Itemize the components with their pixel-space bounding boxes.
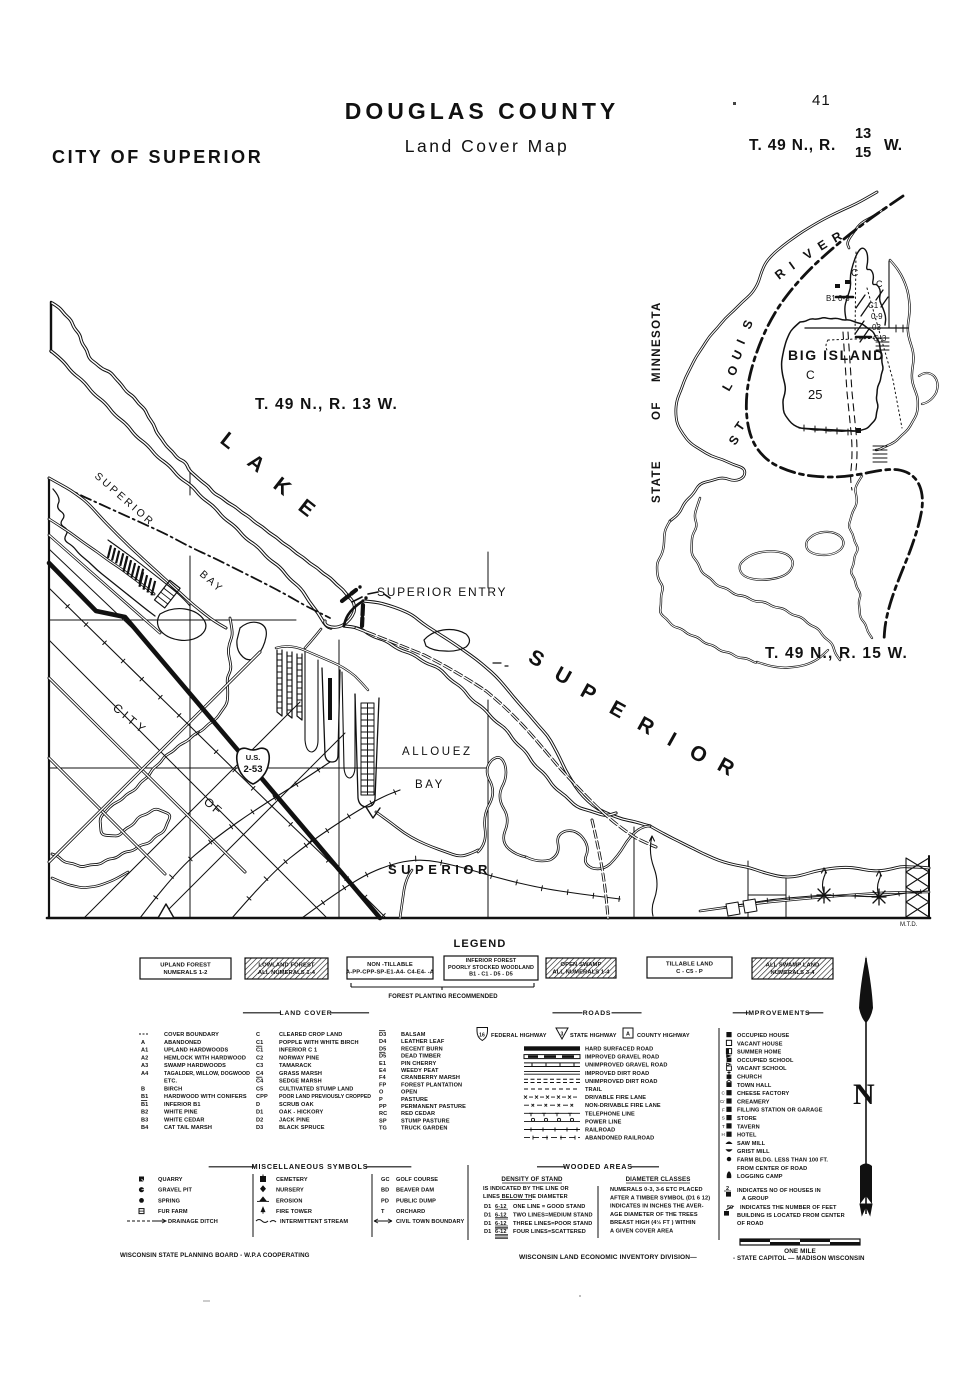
svg-text:TRAIL: TRAIL (585, 1087, 602, 1093)
svg-text:P: P (379, 1097, 383, 1103)
svg-text:C1: C1 (868, 301, 879, 310)
svg-text:GOLF COURSE: GOLF COURSE (396, 1177, 438, 1183)
svg-text:TWO LINES=MEDIUM STAND: TWO LINES=MEDIUM STAND (513, 1212, 593, 1218)
svg-text:PUBLIC DUMP: PUBLIC DUMP (396, 1198, 436, 1204)
svg-text:THREE LINES=POOR STAND: THREE LINES=POOR STAND (513, 1221, 592, 1227)
svg-text:C - C5 - P: C - C5 - P (676, 969, 703, 975)
svg-text:RAILROAD: RAILROAD (585, 1128, 615, 1134)
svg-text:JACK PINE: JACK PINE (279, 1117, 310, 1123)
svg-text:E1: E1 (379, 1061, 386, 1067)
svg-text:ALLOUEZ: ALLOUEZ (402, 746, 473, 758)
svg-text:WOODED AREAS: WOODED AREAS (563, 1162, 633, 1171)
svg-text:A1: A1 (141, 1048, 148, 1054)
svg-text:NORWAY PINE: NORWAY PINE (279, 1055, 319, 1061)
svg-text:NON -TILLABLE: NON -TILLABLE (367, 962, 413, 968)
svg-text:B1 0-3: B1 0-3 (826, 294, 850, 303)
svg-text:Land Cover Map: Land Cover Map (405, 136, 569, 156)
svg-text:BD: BD (381, 1188, 389, 1194)
svg-text:BAY: BAY (415, 779, 445, 791)
svg-text:BEAVER DAM: BEAVER DAM (396, 1188, 434, 1194)
svg-text:SPRING: SPRING (158, 1198, 180, 1204)
svg-text:RECENT BURN: RECENT BURN (401, 1046, 443, 1052)
svg-text:0-9: 0-9 (871, 312, 883, 321)
svg-text:SP: SP (379, 1118, 387, 1124)
svg-text:POPPLE WITH WHITE BIRCH: POPPLE WITH WHITE BIRCH (279, 1040, 359, 1046)
svg-text:BIG ISLAND: BIG ISLAND (788, 347, 885, 363)
svg-text:CREAMERY: CREAMERY (737, 1099, 770, 1105)
svg-text:PIN CHERRY: PIN CHERRY (401, 1061, 436, 1067)
svg-text:OF ROAD: OF ROAD (737, 1221, 764, 1227)
svg-text:D: D (256, 1102, 260, 1108)
svg-text:NUMERALS 3-4: NUMERALS 3-4 (770, 970, 815, 976)
svg-text:S: S (722, 1116, 725, 1121)
svg-text:TAVERN: TAVERN (737, 1124, 760, 1130)
svg-text:CHURCH: CHURCH (737, 1075, 762, 1081)
svg-text:OF: OF (651, 401, 663, 420)
svg-text:C: C (876, 279, 883, 289)
svg-text:MINNESOTA: MINNESOTA (651, 301, 663, 382)
svg-text:UPLAND FOREST: UPLAND FOREST (160, 962, 211, 968)
svg-text:LAND COVER: LAND COVER (280, 1010, 333, 1017)
svg-text:C1: C1 (256, 1048, 263, 1054)
svg-text:WISCONSIN STATE PLANNING B: WISCONSIN STATE PLANNING BOARD - W.P.A C… (120, 1252, 310, 1259)
svg-text:AFTER A TIMBER SYMBOL (D1 6 12: AFTER A TIMBER SYMBOL (D1 6 12) (610, 1195, 710, 1201)
svg-text:O: O (379, 1090, 384, 1096)
svg-text:WHITE CEDAR: WHITE CEDAR (164, 1117, 205, 1123)
svg-text:OCCUPIED SCHOOL: OCCUPIED SCHOOL (737, 1058, 794, 1064)
svg-text:D1: D1 (256, 1110, 263, 1116)
svg-text:3: 3 (561, 1032, 564, 1038)
svg-text:LOWLAND FOREST: LOWLAND FOREST (258, 962, 315, 968)
svg-text:UNIMPROVED GRAVEL ROAD: UNIMPROVED GRAVEL ROAD (585, 1063, 668, 1069)
svg-text:2-53: 2-53 (243, 764, 262, 775)
svg-text:ETC.: ETC. (164, 1079, 177, 1085)
svg-text:SUPERIOR ENTRY: SUPERIOR ENTRY (377, 585, 507, 599)
svg-text:MISCELLANEOUS SYMBOLS: MISCELLANEOUS SYMBOLS (252, 1162, 369, 1171)
svg-text:SEDGE MARSH: SEDGE MARSH (279, 1079, 322, 1085)
svg-text:INFERIOR B1: INFERIOR B1 (164, 1102, 201, 1108)
svg-text:TOWN HALL: TOWN HALL (737, 1083, 772, 1089)
svg-text:D3: D3 (256, 1125, 263, 1131)
svg-text:M.T.D.: M.T.D. (900, 922, 918, 928)
svg-text:OPEN SWAMP: OPEN SWAMP (561, 962, 602, 968)
svg-text:CAT TAIL MARSH: CAT TAIL MARSH (164, 1125, 212, 1131)
svg-text:A3: A3 (141, 1063, 148, 1069)
svg-text:HARDWOOD WITH CONIFERS: HARDWOOD WITH CONIFERS (164, 1094, 247, 1100)
svg-text:T: T (722, 1124, 725, 1129)
svg-text:DEAD TIMBER: DEAD TIMBER (401, 1054, 441, 1060)
svg-text:SAW MILL: SAW MILL (737, 1141, 766, 1147)
svg-text:RED CEDAR: RED CEDAR (401, 1111, 435, 1117)
svg-text:GRAVEL PIT: GRAVEL PIT (158, 1188, 193, 1194)
svg-text:VACANT HOUSE: VACANT HOUSE (737, 1041, 783, 1047)
svg-text:ORCHARD: ORCHARD (396, 1209, 425, 1215)
svg-text:TAGALDER, WILLOW, DOGWOOD: TAGALDER, WILLOW, DOGWOOD (164, 1071, 250, 1077)
svg-text:NUMERALS 0-3, 3-6 ETC PLACED: NUMERALS 0-3, 3-6 ETC PLACED (610, 1187, 703, 1193)
svg-text:PD: PD (381, 1198, 389, 1204)
svg-text:BIRCH: BIRCH (164, 1086, 182, 1092)
svg-text:TAMARACK: TAMARACK (279, 1063, 312, 1069)
svg-text:INDICATES NO OF HOUSES IN: INDICATES NO OF HOUSES IN (737, 1188, 821, 1194)
svg-text:F: F (722, 1107, 725, 1112)
svg-text:SUPERIOR: SUPERIOR (388, 862, 492, 877)
svg-text:CEMETERY: CEMETERY (276, 1177, 308, 1183)
svg-text:INDICATES THE NUMBER OF FE: INDICATES THE NUMBER OF FEET (740, 1205, 837, 1211)
svg-text:CITY OF SUPERIOR: CITY OF SUPERIOR (52, 147, 263, 167)
svg-text:HEMLOCK WITH HARDWOOD: HEMLOCK WITH HARDWOOD (164, 1055, 246, 1061)
svg-text:B1: B1 (141, 1102, 148, 1108)
svg-text:T. 49 N., R. 15 W.: T. 49 N., R. 15 W. (765, 645, 908, 662)
svg-text:INTERMITTENT STREAM: INTERMITTENT STREAM (280, 1219, 348, 1225)
svg-text:DENSITY OF STAND: DENSITY OF STAND (501, 1176, 563, 1183)
svg-text:N: N (853, 1078, 875, 1111)
svg-text:LEGEND: LEGEND (453, 938, 506, 950)
svg-text:IMPROVEMENTS: IMPROVEMENTS (746, 1010, 811, 1017)
svg-text:OPEN: OPEN (401, 1090, 417, 1096)
svg-text:STATE: STATE (651, 460, 663, 503)
svg-text:STATE HIGHWAY: STATE HIGHWAY (570, 1033, 617, 1039)
svg-text:RC: RC (379, 1111, 387, 1117)
svg-text:TELEPHONE LINE: TELEPHONE LINE (585, 1111, 635, 1117)
svg-text:STUMP PASTURE: STUMP PASTURE (401, 1118, 450, 1124)
svg-text:FROM CENTER OF ROAD: FROM CENTER OF ROAD (737, 1166, 807, 1172)
svg-text:A GIVEN COVER AREA: A GIVEN COVER AREA (610, 1229, 673, 1235)
svg-text:BLACK SPRUCE: BLACK SPRUCE (279, 1125, 325, 1131)
svg-text:DIAMETER CLASSES: DIAMETER CLASSES (626, 1176, 691, 1183)
svg-text:NURSERY: NURSERY (276, 1188, 304, 1194)
svg-text:INFERIOR FOREST: INFERIOR FOREST (466, 958, 517, 964)
svg-text:BALSAM: BALSAM (401, 1032, 426, 1038)
svg-text:GRIST MILL: GRIST MILL (737, 1149, 770, 1155)
svg-text:NON-DRIVABLE FIRE LANE: NON-DRIVABLE FIRE LANE (585, 1103, 661, 1109)
svg-text:GC: GC (381, 1177, 390, 1183)
svg-text:LEATHER LEAF: LEATHER LEAF (401, 1039, 445, 1045)
svg-text:C5: C5 (256, 1086, 263, 1092)
svg-text:TILLABLE LAND: TILLABLE LAND (666, 961, 713, 967)
svg-text:D5: D5 (379, 1054, 386, 1060)
svg-text:PERMANENT PASTURE: PERMANENT PASTURE (401, 1104, 466, 1110)
svg-text:EROSION: EROSION (276, 1198, 303, 1204)
svg-text:FARM BLDG. LESS THAN 100 FT.: FARM BLDG. LESS THAN 100 FT. (737, 1158, 828, 1164)
svg-text:C3: C3 (256, 1063, 263, 1069)
svg-text:FOUR LINES=SCATTERED: FOUR LINES=SCATTERED (513, 1229, 586, 1235)
svg-text:COVER BOUNDARY: COVER BOUNDARY (164, 1032, 219, 1038)
svg-text:B2: B2 (141, 1110, 148, 1116)
svg-text:Cr: Cr (720, 1099, 725, 1104)
svg-text:C: C (851, 268, 858, 279)
svg-text:FILLING STATION OR GARAGE: FILLING STATION OR GARAGE (737, 1108, 823, 1114)
svg-text:DRIVABLE FIRE LANE: DRIVABLE FIRE LANE (585, 1095, 646, 1101)
svg-text:ALL NUMERALS 1-4: ALL NUMERALS 1-4 (258, 970, 316, 976)
svg-text:D1: D1 (484, 1212, 491, 1218)
svg-text:25: 25 (808, 387, 822, 402)
svg-text:ROADS: ROADS (583, 1010, 612, 1017)
svg-text:T. 49 N., R.: T. 49 N., R. (749, 137, 836, 154)
svg-text:A4: A4 (141, 1071, 149, 1077)
svg-text:VACANT SCHOOL: VACANT SCHOOL (737, 1066, 787, 1072)
svg-text:ABANDONED: ABANDONED (164, 1040, 201, 1046)
svg-text:TG: TG (379, 1126, 387, 1132)
svg-text:A2: A2 (141, 1055, 148, 1061)
svg-text:B1: B1 (141, 1094, 148, 1100)
svg-text:NUMERALS 1-2: NUMERALS 1-2 (163, 970, 207, 976)
svg-text:D4: D4 (379, 1039, 387, 1045)
svg-text:INFERIOR C 1: INFERIOR C 1 (279, 1048, 317, 1054)
svg-text:HOTEL: HOTEL (737, 1133, 757, 1139)
svg-text:OAK - HICKORY: OAK - HICKORY (279, 1110, 323, 1116)
svg-text:C4: C4 (256, 1071, 264, 1077)
svg-text:DOUGLAS COUNTY: DOUGLAS COUNTY (345, 98, 620, 124)
svg-text:DRAINAGE DITCH: DRAINAGE DITCH (168, 1219, 218, 1225)
svg-text:ABANDONED RAILROAD: ABANDONED RAILROAD (585, 1136, 654, 1142)
svg-text:C2: C2 (256, 1055, 263, 1061)
svg-text:PASTURE: PASTURE (401, 1097, 428, 1103)
svg-text:AGE DIAMETER OF THE TREES: AGE DIAMETER OF THE TREES (610, 1212, 698, 1218)
svg-text:B3: B3 (141, 1117, 148, 1123)
svg-text:ONE LINE = GOOD STAND: ONE LINE = GOOD STAND (513, 1204, 585, 1210)
svg-text:U.S.: U.S. (246, 753, 261, 762)
svg-text:ALL SWAMP LAND: ALL SWAMP LAND (766, 962, 820, 968)
svg-text:COUNTY HIGHWAY: COUNTY HIGHWAY (637, 1033, 690, 1039)
svg-text:T: T (381, 1209, 385, 1215)
svg-text:B4: B4 (141, 1125, 149, 1131)
svg-text:QUARRY: QUARRY (158, 1177, 183, 1183)
svg-text:D1: D1 (484, 1229, 491, 1235)
svg-text:UPLAND HARDWOODS: UPLAND HARDWOODS (164, 1048, 229, 1054)
svg-text:E4: E4 (379, 1068, 387, 1074)
svg-text:C: C (256, 1032, 260, 1038)
svg-text:CLEARED CROP LAND: CLEARED CROP LAND (279, 1032, 342, 1038)
svg-text:CPP: CPP (256, 1094, 268, 1100)
svg-text:IS INDICATED BY THE LINE: IS INDICATED BY THE LINE OR (483, 1186, 569, 1192)
svg-text:LOGGING CAMP: LOGGING CAMP (737, 1174, 783, 1180)
svg-text:- STATE CAPITOL — MADISON: - STATE CAPITOL — MADISON WISCONSIN (733, 1255, 865, 1262)
svg-text:WHITE PINE: WHITE PINE (164, 1110, 198, 1116)
svg-text:ALL NUMERALS 1-4: ALL NUMERALS 1-4 (552, 969, 610, 975)
svg-text:C: C (806, 368, 815, 382)
svg-text:A: A (141, 1040, 145, 1046)
svg-text:POOR LAND PREVIOUSLY CROPPED: POOR LAND PREVIOUSLY CROPPED (279, 1094, 371, 1100)
svg-text:D5: D5 (379, 1046, 386, 1052)
svg-text:T. 49 N., R. 13 W.: T. 49 N., R. 13 W. (255, 396, 398, 413)
svg-text:C1: C1 (256, 1040, 263, 1046)
svg-text:16: 16 (479, 1033, 485, 1039)
svg-text:GRASS MARSH: GRASS MARSH (279, 1071, 322, 1077)
svg-text:BREAST HIGH (4½ FT ) WITHIN: BREAST HIGH (4½ FT ) WITHIN (610, 1219, 696, 1226)
svg-text:13: 13 (855, 126, 871, 142)
svg-text:OCCUPIED HOUSE: OCCUPIED HOUSE (737, 1033, 790, 1039)
svg-text:G-3: G-3 (873, 334, 887, 343)
svg-text:WISCONSIN LAND ECONOMIC INV: WISCONSIN LAND ECONOMIC INVENTORY DIVISI… (519, 1254, 697, 1261)
svg-text:FUR FARM: FUR FARM (158, 1209, 188, 1215)
svg-text:SUMMER HOME: SUMMER HOME (737, 1050, 781, 1056)
svg-text:IMPROVED DIRT ROAD: IMPROVED DIRT ROAD (585, 1071, 649, 1077)
svg-text:INDICATES IN INCHES THE AVER-: INDICATES IN INCHES THE AVER- (610, 1204, 704, 1210)
svg-text:D2: D2 (256, 1117, 263, 1123)
svg-text:HARD SURFACED ROAD: HARD SURFACED ROAD (585, 1047, 653, 1053)
svg-text:PP: PP (379, 1104, 387, 1110)
svg-text:D1: D1 (484, 1221, 491, 1227)
svg-text:CHEESE FACTORY: CHEESE FACTORY (737, 1091, 790, 1097)
svg-text:STORE: STORE (737, 1116, 757, 1122)
svg-text:C4: C4 (256, 1079, 264, 1085)
svg-text:TRUCK GARDEN: TRUCK GARDEN (401, 1126, 448, 1132)
svg-text:IMPROVED GRAVEL ROAD: IMPROVED GRAVEL ROAD (585, 1055, 659, 1061)
svg-text:LINES BELOW THE DIAMETER: LINES BELOW THE DIAMETER (483, 1194, 568, 1200)
svg-text:SWAMP HARDWOODS: SWAMP HARDWOODS (164, 1063, 226, 1069)
svg-text:FP: FP (379, 1082, 387, 1088)
svg-text:WEEDY PEAT: WEEDY PEAT (401, 1068, 439, 1074)
svg-text:CIVIL TOWN BOUNDARY: CIVIL TOWN BOUNDARY (396, 1219, 464, 1225)
svg-text:POWER LINE: POWER LINE (585, 1119, 622, 1125)
svg-text:D3: D3 (379, 1032, 386, 1038)
svg-text:A: A (626, 1032, 630, 1038)
svg-text:FOREST PLANTATION: FOREST PLANTATION (401, 1082, 462, 1088)
svg-text:15: 15 (855, 145, 871, 161)
svg-text:CULTIVATED STUMP LAND: CULTIVATED STUMP LAND (279, 1086, 353, 1092)
svg-text:BUILDING IS LOCATED FROM C: BUILDING IS LOCATED FROM CENTER (737, 1213, 845, 1219)
svg-text:ONE MILE: ONE MILE (784, 1248, 816, 1255)
svg-text:W.: W. (884, 137, 902, 154)
svg-text:UNIMPROVED DIRT ROAD: UNIMPROVED DIRT ROAD (585, 1079, 658, 1085)
svg-text:SCRUB OAK: SCRUB OAK (279, 1102, 314, 1108)
svg-text:FIRE TOWER: FIRE TOWER (276, 1209, 312, 1215)
svg-text:FEDERAL HIGHWAY: FEDERAL HIGHWAY (491, 1033, 547, 1039)
svg-text:CRANBERRY MARSH: CRANBERRY MARSH (401, 1075, 460, 1081)
svg-text:H: H (722, 1132, 725, 1137)
svg-text:POORLY STOCKED WOODLAND: POORLY STOCKED WOODLAND (448, 965, 534, 971)
svg-text:A GROUP: A GROUP (742, 1196, 769, 1202)
svg-text:B: B (141, 1086, 145, 1092)
svg-text:D1: D1 (484, 1204, 491, 1210)
svg-text:A-PP-CPP-SP-E1-A4- C4-E4- -A: A-PP-CPP-SP-E1-A4- C4-E4- -A (346, 969, 435, 975)
svg-text:03: 03 (872, 323, 881, 332)
svg-text:FOREST PLANTING RECOMMENDED: FOREST PLANTING RECOMMENDED (388, 994, 498, 1000)
svg-text:B1 - C1 - D5 - D5: B1 - C1 - D5 - D5 (469, 972, 513, 978)
svg-text:41: 41 (812, 92, 831, 109)
svg-text:F4: F4 (379, 1075, 387, 1081)
